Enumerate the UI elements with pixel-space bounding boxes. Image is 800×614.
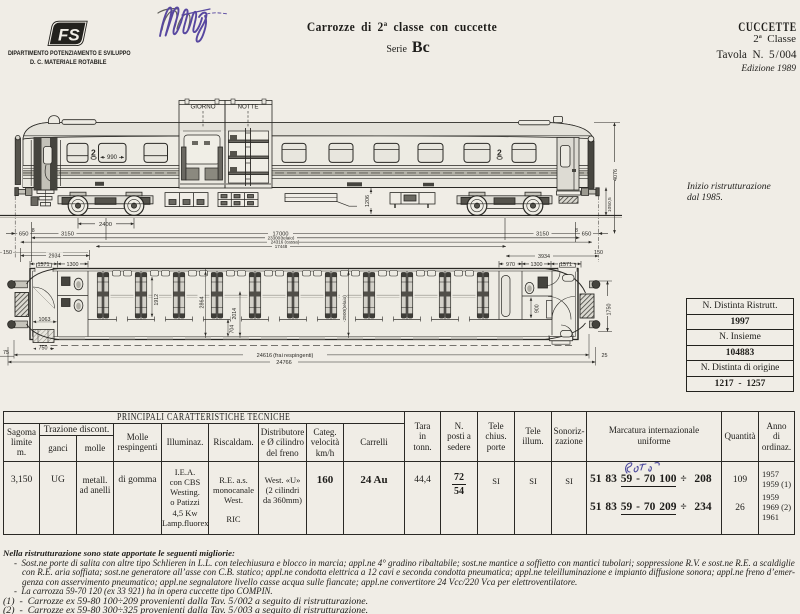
svg-text:990: 990 bbox=[107, 155, 118, 161]
svg-text:1206: 1206 bbox=[365, 195, 371, 207]
svg-text:25: 25 bbox=[602, 353, 608, 359]
svg-text:8: 8 bbox=[32, 228, 35, 234]
svg-text:4076: 4076 bbox=[613, 169, 619, 181]
svg-text:750: 750 bbox=[39, 345, 48, 351]
svg-text:3150: 3150 bbox=[536, 232, 549, 238]
svg-text:1050,5: 1050,5 bbox=[607, 197, 613, 212]
svg-text:17448: 17448 bbox=[275, 244, 288, 249]
svg-text:2934: 2934 bbox=[49, 254, 61, 260]
svg-text:2: 2 bbox=[91, 148, 96, 158]
svg-text:2: 2 bbox=[497, 148, 502, 158]
svg-text:8: 8 bbox=[575, 228, 578, 234]
svg-text:2864: 2864 bbox=[200, 297, 206, 309]
svg-text:1300: 1300 bbox=[67, 262, 79, 268]
svg-text:650: 650 bbox=[582, 232, 592, 238]
svg-text:24616 (fra i respingenti): 24616 (fra i respingenti) bbox=[257, 353, 314, 359]
svg-text:2400: 2400 bbox=[99, 222, 112, 228]
svg-text:704: 704 bbox=[230, 325, 236, 334]
svg-text:150: 150 bbox=[594, 250, 603, 256]
svg-text:1912: 1912 bbox=[154, 294, 160, 306]
svg-text:2900(telaio): 2900(telaio) bbox=[342, 295, 348, 321]
svg-text:650: 650 bbox=[19, 232, 29, 238]
svg-text:24766: 24766 bbox=[276, 360, 292, 366]
svg-text:1300: 1300 bbox=[531, 262, 543, 268]
svg-text:1750: 1750 bbox=[607, 304, 613, 316]
svg-text:970: 970 bbox=[506, 262, 515, 268]
svg-text:2014: 2014 bbox=[232, 308, 238, 320]
svg-text:900: 900 bbox=[535, 304, 541, 313]
svg-text:1063: 1063 bbox=[39, 317, 51, 323]
svg-text:3150: 3150 bbox=[61, 232, 74, 238]
svg-text:3934: 3934 bbox=[538, 254, 550, 260]
svg-text:150: 150 bbox=[3, 250, 12, 256]
